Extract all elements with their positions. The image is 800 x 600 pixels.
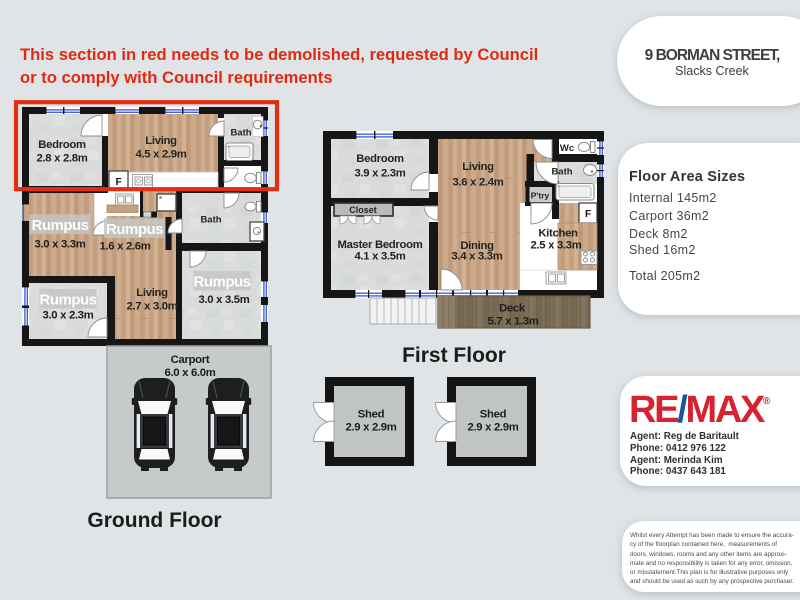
svg-text:Living: Living bbox=[462, 161, 494, 173]
svg-text:Rumpus: Rumpus bbox=[32, 217, 89, 234]
svg-text:2.9 x 2.9m: 2.9 x 2.9m bbox=[345, 422, 396, 434]
svg-text:3.6 x 2.4m: 3.6 x 2.4m bbox=[452, 177, 503, 189]
svg-text:Bath: Bath bbox=[551, 167, 572, 178]
svg-text:6.0 x 6.0m: 6.0 x 6.0m bbox=[164, 367, 215, 379]
svg-text:Wc: Wc bbox=[560, 143, 574, 154]
svg-text:F: F bbox=[585, 209, 591, 220]
svg-text:2.8 x 2.8m: 2.8 x 2.8m bbox=[36, 153, 87, 165]
svg-text:Shed: Shed bbox=[358, 409, 385, 421]
svg-text:Bath: Bath bbox=[230, 128, 251, 139]
svg-text:Bedroom: Bedroom bbox=[38, 139, 86, 151]
svg-text:1.6 x 2.6m: 1.6 x 2.6m bbox=[99, 241, 150, 253]
svg-text:Closet: Closet bbox=[349, 205, 377, 215]
svg-text:3.0 x 2.3m: 3.0 x 2.3m bbox=[42, 310, 93, 322]
svg-text:Kitchen: Kitchen bbox=[538, 228, 578, 240]
svg-text:Rumpus: Rumpus bbox=[194, 274, 251, 291]
svg-text:F: F bbox=[115, 177, 121, 188]
svg-text:First Floor: First Floor bbox=[402, 344, 506, 367]
svg-text:Deck: Deck bbox=[499, 303, 526, 315]
svg-text:3.4 x 3.3m: 3.4 x 3.3m bbox=[451, 251, 502, 263]
svg-text:3.0 x 3.5m: 3.0 x 3.5m bbox=[198, 294, 249, 306]
svg-text:5.7 x 1.3m: 5.7 x 1.3m bbox=[487, 316, 538, 328]
svg-text:Shed: Shed bbox=[480, 409, 507, 421]
svg-text:2.5 x 3.3m: 2.5 x 3.3m bbox=[530, 240, 581, 252]
svg-text:Bedroom: Bedroom bbox=[356, 153, 404, 165]
svg-text:Living: Living bbox=[145, 135, 177, 147]
svg-text:Bath: Bath bbox=[200, 215, 221, 226]
svg-text:4.1 x 3.5m: 4.1 x 3.5m bbox=[354, 251, 405, 263]
svg-text:2.7 x 3.0m: 2.7 x 3.0m bbox=[126, 301, 177, 313]
svg-text:P'try: P'try bbox=[531, 191, 550, 201]
svg-text:Carport: Carport bbox=[171, 354, 210, 366]
svg-text:Ground Floor: Ground Floor bbox=[87, 509, 221, 532]
svg-text:3.0 x 3.3m: 3.0 x 3.3m bbox=[34, 239, 85, 251]
svg-text:3.9 x 2.3m: 3.9 x 2.3m bbox=[354, 168, 405, 180]
svg-text:4.5 x 2.9m: 4.5 x 2.9m bbox=[135, 149, 186, 161]
svg-text:Rumpus: Rumpus bbox=[40, 292, 97, 309]
svg-text:Living: Living bbox=[136, 287, 168, 299]
svg-text:2.9 x 2.9m: 2.9 x 2.9m bbox=[467, 422, 518, 434]
svg-text:Master Bedroom: Master Bedroom bbox=[338, 239, 423, 251]
svg-text:Rumpus: Rumpus bbox=[106, 221, 163, 238]
